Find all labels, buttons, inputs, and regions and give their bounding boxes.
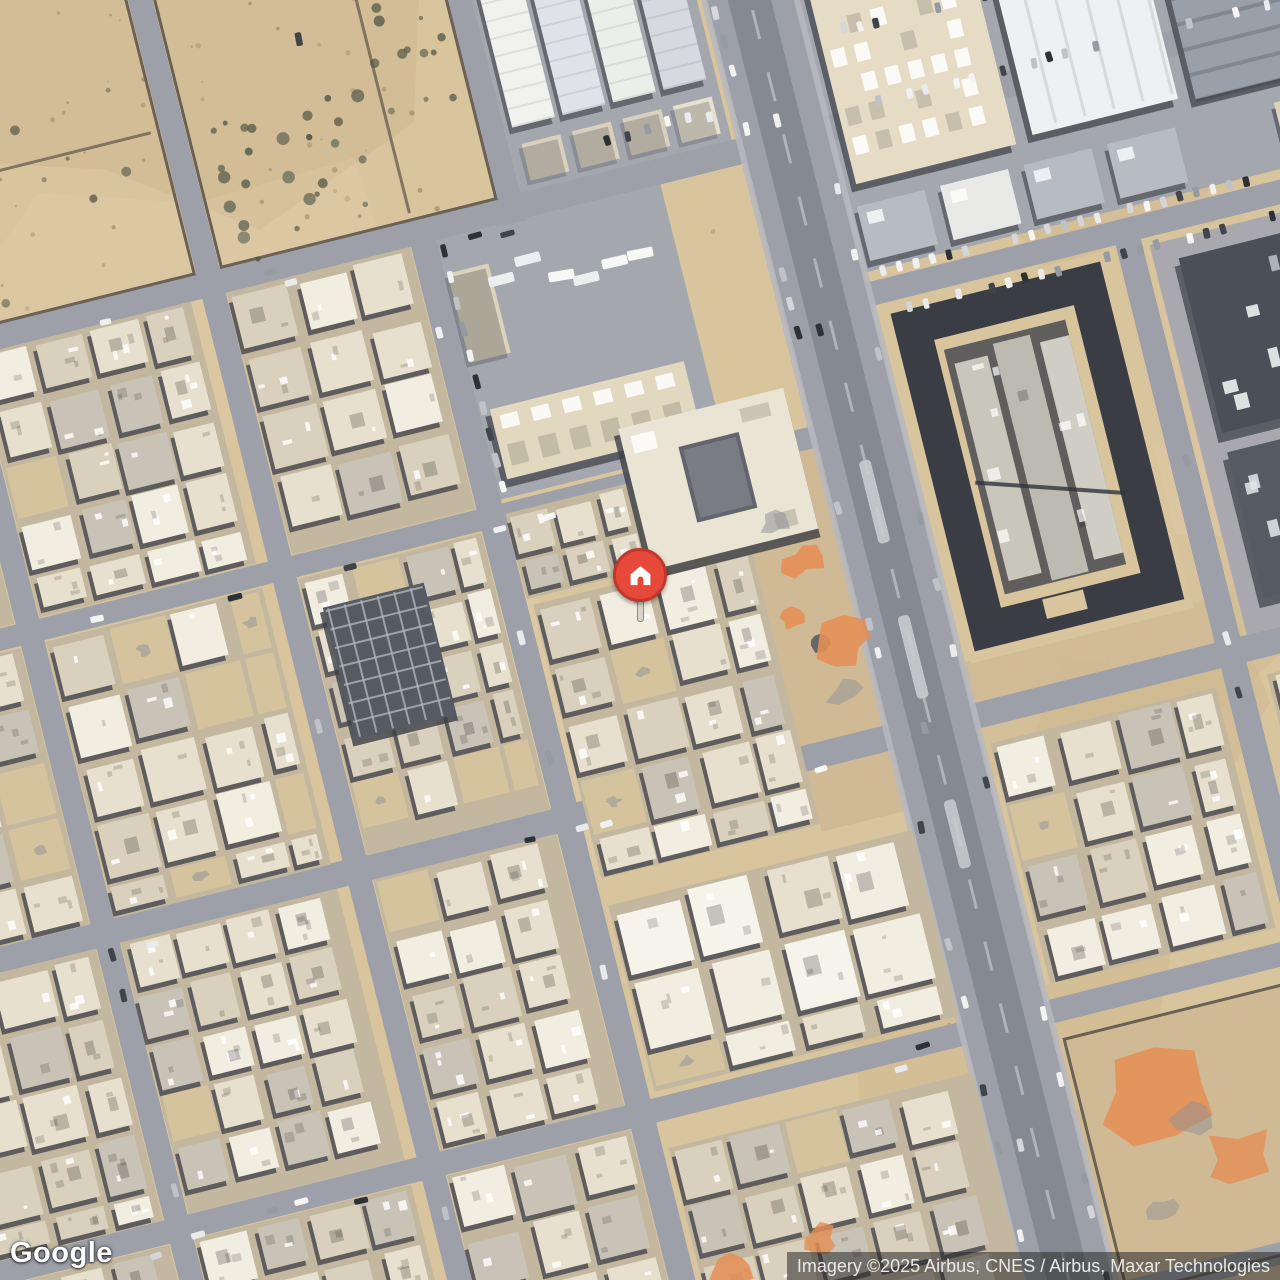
google-logo[interactable]: Google bbox=[10, 1237, 113, 1270]
house-icon bbox=[627, 562, 654, 589]
marker-circle bbox=[613, 548, 667, 602]
satellite-map[interactable]: Google Imagery ©2025 Airbus, CNES / Airb… bbox=[0, 0, 1280, 1280]
satellite-imagery bbox=[0, 0, 1280, 1280]
imagery-attribution: Imagery ©2025 Airbus, CNES / Airbus, Max… bbox=[787, 1252, 1280, 1280]
